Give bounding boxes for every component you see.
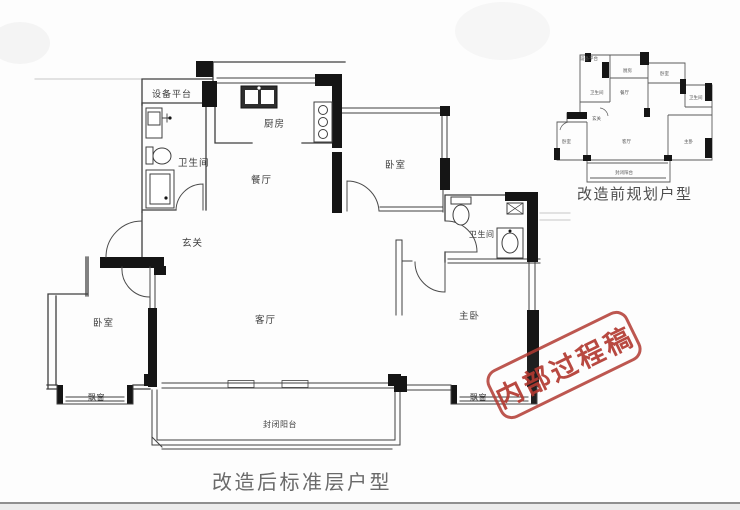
fixtures-kitchen [241,86,332,142]
room-label-kitchen: 厨房 [264,118,285,130]
floorplan-page: 设备平台 卫生间 厨房 餐厅 玄关 卧室 卧室 客厅 卫生间 主卧 飘窗 飘窗 … [0,0,740,510]
room-label-bay-right: 飘窗 [470,392,487,402]
door-master [415,262,445,292]
walls-thin [47,62,540,449]
neighbor-outline [35,79,570,220]
room-label-living: 客厅 [255,314,276,326]
door-bedroom-left [122,267,150,297]
inset-label-dining: 餐厅 [620,89,629,96]
inset-label-equipment-platform: 设备平台 [580,55,598,62]
toilet-icon [146,147,153,164]
bottom-strip [0,504,740,510]
door-entry [106,221,142,257]
inset-label-bathroom-left: 卫生间 [590,89,604,96]
room-label-master: 主卧 [459,310,480,322]
toilet-icon [451,197,471,204]
inset-label-bedroom-left: 卧室 [562,138,571,145]
room-label-entry: 玄关 [182,237,203,249]
inset-caption: 改造前规划户型 [577,183,693,204]
main-caption: 改造后标准层户型 [212,466,392,495]
door-bedroom-top [347,181,379,211]
inset-label-kitchen: 厨房 [623,67,632,74]
inset-walls-black [554,52,712,161]
floor-plan-svg: 设备平台 卫生间 厨房 餐厅 玄关 卧室 卧室 客厅 卫生间 主卧 飘窗 飘窗 … [0,0,740,510]
door-bath-left [176,184,203,210]
inset-label-bathroom-right: 卫生间 [689,94,703,101]
room-label-bathroom-right: 卫生间 [469,229,495,239]
room-label-bedroom-left: 卧室 [93,317,114,329]
inset-plan: 设备平台 卫生间 厨房 餐厅 玄关 卧室 卧室 客厅 卫生间 主卧 封闭阳台 [554,52,712,182]
fixtures-bath-right [451,197,523,258]
stove-icon [314,102,332,142]
walls-black [57,61,539,404]
room-label-bathroom-left: 卫生间 [178,157,210,169]
room-label-equipment-platform: 设备平台 [152,88,192,99]
room-label-bay-left: 飘窗 [88,392,105,402]
inset-label-entry: 玄关 [592,115,601,122]
room-label-balcony: 封闭阳台 [263,419,297,429]
inset-label-bedroom-top: 卧室 [660,70,669,77]
fixtures-bath-left [146,108,174,208]
inset-label-living: 客厅 [622,138,631,145]
inset-label-balcony: 封闭阳台 [615,169,633,176]
inset-label-master: 主卧 [684,138,693,145]
room-label-dining: 餐厅 [251,174,272,186]
room-label-bedroom-top: 卧室 [385,159,406,171]
